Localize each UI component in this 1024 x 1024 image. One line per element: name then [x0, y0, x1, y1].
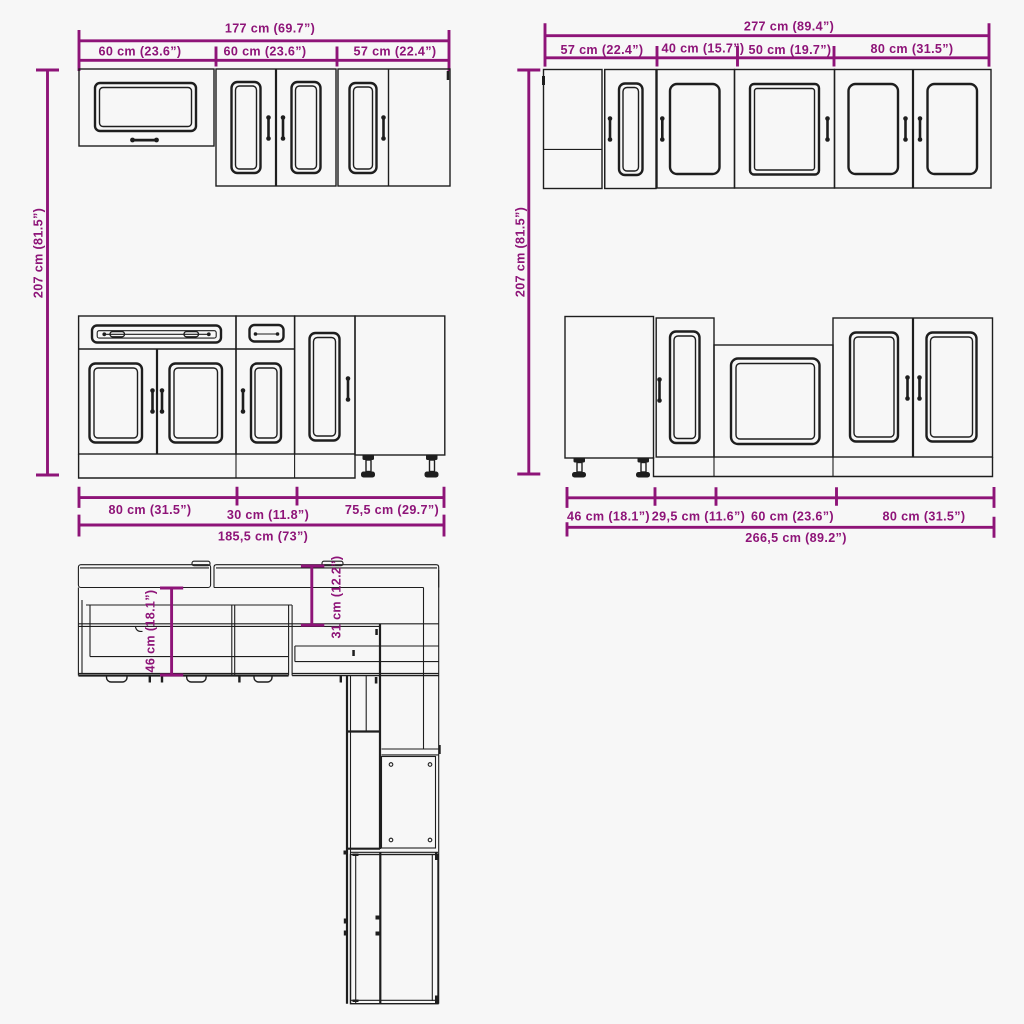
svg-text:31 cm (12.2”): 31 cm (12.2”) — [330, 556, 344, 639]
svg-text:46 cm (18.1”): 46 cm (18.1”) — [144, 590, 158, 673]
svg-text:277 cm (89.4”): 277 cm (89.4”) — [744, 19, 834, 33]
svg-text:50 cm (19.7”): 50 cm (19.7”) — [749, 43, 832, 57]
svg-text:60 cm (23.6”): 60 cm (23.6”) — [224, 45, 307, 59]
svg-text:75,5 cm (29.7”): 75,5 cm (29.7”) — [345, 503, 439, 517]
svg-text:46 cm (18.1”): 46 cm (18.1”) — [567, 510, 650, 524]
svg-text:177 cm (69.7”): 177 cm (69.7”) — [225, 21, 315, 35]
svg-text:29,5 cm (11.6”): 29,5 cm (11.6”) — [652, 510, 745, 524]
svg-text:80 cm (31.5”): 80 cm (31.5”) — [883, 510, 966, 524]
svg-text:60 cm (23.6”): 60 cm (23.6”) — [751, 510, 834, 524]
svg-text:57 cm (22.4”): 57 cm (22.4”) — [561, 43, 644, 57]
svg-text:80 cm (31.5”): 80 cm (31.5”) — [871, 42, 954, 56]
svg-text:30 cm (11.8”): 30 cm (11.8”) — [227, 508, 309, 522]
svg-text:40 cm (15.7”): 40 cm (15.7”) — [662, 42, 745, 56]
svg-text:80 cm (31.5”): 80 cm (31.5”) — [109, 503, 192, 517]
svg-text:185,5 cm (73”): 185,5 cm (73”) — [218, 529, 308, 543]
svg-text:207 cm (81.5”): 207 cm (81.5”) — [32, 208, 46, 298]
svg-text:266,5 cm (89.2”): 266,5 cm (89.2”) — [745, 531, 847, 545]
svg-text:57 cm (22.4”): 57 cm (22.4”) — [354, 45, 437, 59]
svg-text:207 cm (81.5”): 207 cm (81.5”) — [513, 207, 527, 297]
svg-text:60 cm (23.6”): 60 cm (23.6”) — [99, 45, 182, 59]
